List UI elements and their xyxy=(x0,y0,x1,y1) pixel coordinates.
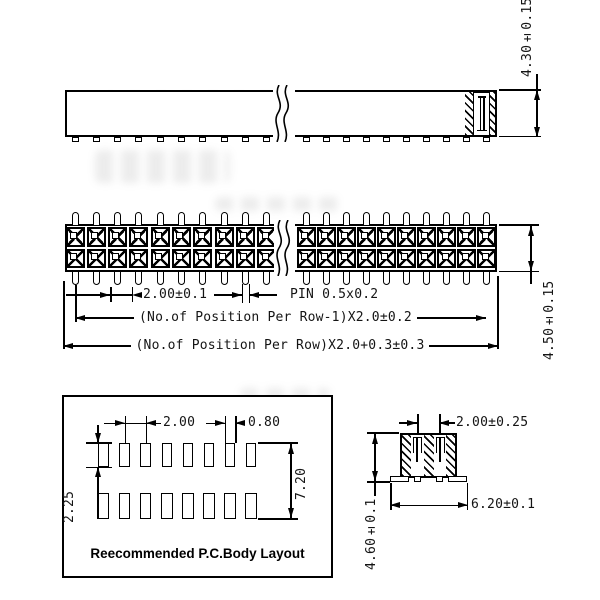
contact-cell xyxy=(337,227,356,247)
dim-line xyxy=(480,97,482,130)
contact-cell xyxy=(437,227,456,247)
dim-arrow xyxy=(534,90,540,100)
contact-cell xyxy=(317,249,336,269)
pin-bottom xyxy=(263,272,270,285)
contact-cell xyxy=(129,249,148,269)
dim-line xyxy=(497,276,499,349)
dim-arrow xyxy=(439,420,449,426)
pin-bottom xyxy=(383,272,390,285)
pin-top xyxy=(463,212,470,225)
dim-arrow xyxy=(146,420,156,426)
layout-pad-top xyxy=(225,443,236,467)
dim-overall-length: (No.of Position Per Row)X2.0+0.3±0.3 xyxy=(63,338,497,353)
contact-cell xyxy=(377,227,396,247)
layout-pad-top xyxy=(162,443,173,467)
pin-top xyxy=(363,212,370,225)
pin-top xyxy=(72,212,79,225)
pin-top xyxy=(323,212,330,225)
dim-line xyxy=(436,437,438,453)
pin-top xyxy=(443,212,450,225)
dim-line xyxy=(242,284,244,303)
contact-cell xyxy=(151,227,170,247)
contact-cell xyxy=(66,249,85,269)
dim-line xyxy=(444,437,446,453)
pin-foot xyxy=(323,137,330,142)
pin-top xyxy=(221,212,228,225)
pin-top xyxy=(383,212,390,225)
contact-cell xyxy=(193,227,212,247)
dim-line xyxy=(110,287,112,302)
dim-line xyxy=(417,414,419,433)
pin-bottom xyxy=(303,272,310,285)
drawing-canvas: Reecommended P.C.Body Layout 4.30±0.15 2… xyxy=(0,0,600,600)
break-symbol xyxy=(271,220,299,276)
dim-arrow xyxy=(528,261,534,271)
layout-pad-top xyxy=(119,443,130,467)
pin-foot xyxy=(114,137,121,142)
pin-bottom xyxy=(443,272,450,285)
end-view-wall-hatch xyxy=(402,435,411,476)
dim-arrow xyxy=(407,420,417,426)
dim-arrow xyxy=(288,508,294,518)
dim-line xyxy=(86,442,112,444)
pin-bottom xyxy=(483,272,490,285)
dim-side-height: 4.30±0.15 xyxy=(520,3,536,77)
end-view-rib-hatch xyxy=(424,435,434,476)
layout-pad-bottom xyxy=(245,493,257,519)
pin-foot xyxy=(423,137,430,142)
pin-bottom xyxy=(72,272,79,285)
pin-top xyxy=(157,212,164,225)
dim-arrow xyxy=(215,420,225,426)
dim-line xyxy=(374,481,376,496)
dim-line xyxy=(483,97,485,130)
end-view-wall-hatch xyxy=(446,435,455,476)
dim-row-span: 7.20 xyxy=(294,460,310,500)
dim-arrow xyxy=(100,292,110,298)
pin-foot xyxy=(221,137,228,142)
pin-top xyxy=(343,212,350,225)
dim-line xyxy=(421,437,423,453)
break-symbol xyxy=(270,85,298,142)
pin-bottom xyxy=(323,272,330,285)
pin-bottom xyxy=(93,272,100,285)
contact-cell xyxy=(417,227,436,247)
dim-line xyxy=(390,505,468,507)
end-view-foot xyxy=(414,476,421,482)
pin-top xyxy=(423,212,430,225)
pin-foot xyxy=(199,137,206,142)
contact-cell xyxy=(151,249,170,269)
pin-top xyxy=(483,212,490,225)
dim-pin-size: PIN 0.5x0.2 xyxy=(290,287,378,302)
contact-cell xyxy=(236,227,255,247)
pin-top xyxy=(114,212,121,225)
dim-span-minus-one: (No.of Position Per Row-1)X2.0±0.2 xyxy=(65,310,486,325)
pin-top xyxy=(303,212,310,225)
dim-arrow xyxy=(458,502,468,508)
end-view-foot xyxy=(448,476,467,483)
contact-cell xyxy=(417,249,436,269)
layout-pad-bottom xyxy=(203,493,215,519)
contact-cell xyxy=(129,227,148,247)
layout-pad-top xyxy=(140,443,151,467)
dim-end-foot-span: 6.20±0.1 xyxy=(471,497,535,512)
pc-layout-title: Reecommended P.C.Body Layout xyxy=(64,546,331,561)
layout-pad-top xyxy=(246,443,257,467)
contact-cell xyxy=(477,227,496,247)
contact-cell xyxy=(377,249,396,269)
pin-foot xyxy=(93,137,100,142)
dim-arrow xyxy=(232,292,242,298)
pin-bottom xyxy=(199,272,206,285)
pin-foot xyxy=(72,137,79,142)
pin-bottom xyxy=(135,272,142,285)
pin-foot xyxy=(403,137,410,142)
end-view-foot xyxy=(390,476,409,483)
pin-foot xyxy=(363,137,370,142)
side-view-wall-hatch xyxy=(489,92,496,135)
contact-cell xyxy=(297,227,316,247)
dim-arrow xyxy=(528,226,534,236)
dim-line xyxy=(125,416,127,443)
contact-cell xyxy=(397,249,416,269)
dim-pitch: 2.00±0.1 xyxy=(143,287,207,302)
layout-pad-bottom xyxy=(224,493,236,519)
dim-line xyxy=(367,481,390,483)
layout-pad-top xyxy=(183,443,194,467)
layout-pad-bottom xyxy=(119,493,131,519)
dim-arrow xyxy=(288,444,294,454)
pin-foot xyxy=(242,137,249,142)
dim-line xyxy=(478,96,487,98)
pin-bottom xyxy=(157,272,164,285)
pin-bottom xyxy=(403,272,410,285)
pin-bottom xyxy=(363,272,370,285)
contact-cell xyxy=(172,249,191,269)
contact-cell xyxy=(87,227,106,247)
pin-top xyxy=(93,212,100,225)
pin-bottom xyxy=(178,272,185,285)
dim-line xyxy=(416,437,418,462)
dim-pad-width: 0.80 xyxy=(248,415,280,430)
dim-pad-pitch: 2.00 xyxy=(163,415,195,430)
layout-pad-bottom xyxy=(182,493,194,519)
contact-cell xyxy=(87,249,106,269)
dim-line xyxy=(97,467,99,519)
dim-end-row-pitch: 2.00±0.25 xyxy=(456,415,528,430)
pin-foot xyxy=(483,137,490,142)
contact-cell xyxy=(297,249,316,269)
pin-foot xyxy=(157,137,164,142)
pin-foot xyxy=(343,137,350,142)
contact-cell xyxy=(357,249,376,269)
contact-cell xyxy=(236,249,255,269)
pin-foot xyxy=(178,137,185,142)
pin-foot xyxy=(463,137,470,142)
contact-cell xyxy=(317,227,336,247)
dim-line xyxy=(477,130,487,132)
pin-bottom xyxy=(463,272,470,285)
pin-foot xyxy=(383,137,390,142)
pin-bottom xyxy=(221,272,228,285)
contact-cell xyxy=(215,227,234,247)
layout-pad-bottom xyxy=(98,493,110,519)
dim-arrow xyxy=(235,420,245,426)
dim-line xyxy=(225,416,227,443)
dim-arrow xyxy=(534,127,540,137)
pin-top xyxy=(178,212,185,225)
layout-pad-top xyxy=(98,443,109,467)
pin-foot xyxy=(443,137,450,142)
contact-cell xyxy=(215,249,234,269)
pin-foot xyxy=(303,137,310,142)
pin-top xyxy=(242,212,249,225)
pin-top xyxy=(135,212,142,225)
dim-top-view-width: 4.50±0.15 xyxy=(542,286,558,360)
dim-pad-height: 2.25 xyxy=(62,483,78,523)
dim-arrow xyxy=(95,433,101,443)
dim-arrow xyxy=(249,292,259,298)
contact-cell xyxy=(172,227,191,247)
layout-pad-top xyxy=(204,443,215,467)
contact-cell xyxy=(457,227,476,247)
contact-cell xyxy=(457,249,476,269)
dim-arrow xyxy=(115,420,125,426)
pin-top xyxy=(199,212,206,225)
dim-line xyxy=(258,518,298,520)
dim-arrow xyxy=(390,502,400,508)
pin-bottom xyxy=(423,272,430,285)
pin-top xyxy=(263,212,270,225)
contact-cell xyxy=(108,249,127,269)
dim-line xyxy=(413,437,415,453)
contact-cell xyxy=(193,249,212,269)
dim-arrow xyxy=(372,434,378,444)
contact-cell xyxy=(357,227,376,247)
contact-cell xyxy=(477,249,496,269)
dim-line xyxy=(530,271,532,284)
watermark-smudge xyxy=(95,150,230,183)
contact-cell xyxy=(337,249,356,269)
end-view-foot xyxy=(436,476,443,482)
layout-pad-bottom xyxy=(161,493,173,519)
pin-bottom xyxy=(343,272,350,285)
dim-arrow xyxy=(372,471,378,481)
dim-arrow xyxy=(132,292,142,298)
dim-end-height: 4.60±0.1 xyxy=(364,496,380,570)
layout-pad-bottom xyxy=(140,493,152,519)
pin-foot xyxy=(135,137,142,142)
pin-top xyxy=(403,212,410,225)
watermark-smudge xyxy=(215,197,340,211)
contact-cell xyxy=(437,249,456,269)
pin-bottom xyxy=(114,272,121,285)
contact-cell xyxy=(66,227,85,247)
contact-cell xyxy=(108,227,127,247)
contact-cell xyxy=(397,227,416,247)
dim-line xyxy=(439,437,441,462)
